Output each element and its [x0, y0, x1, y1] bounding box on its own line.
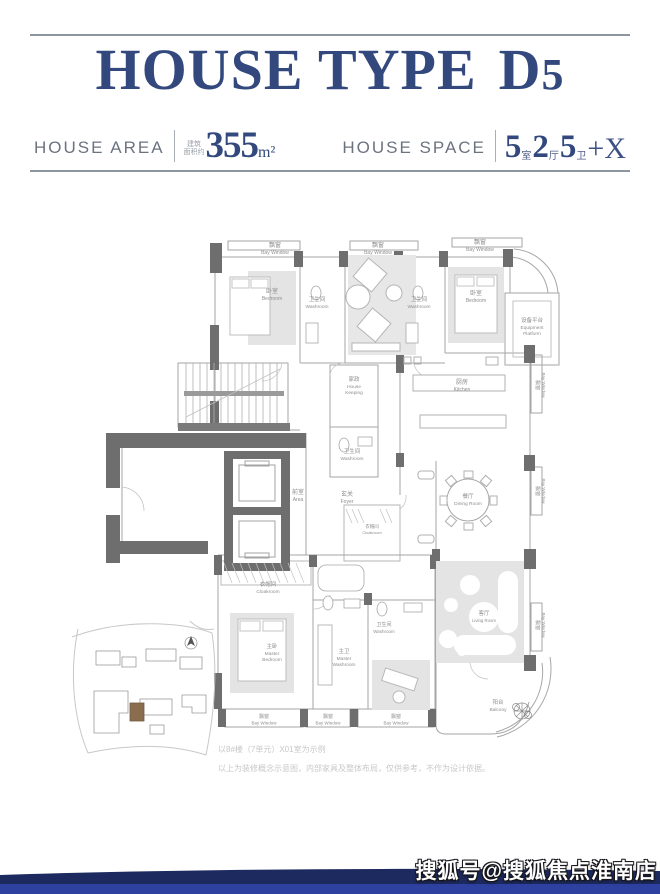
house-space-label: HOUSE SPACE	[342, 138, 486, 164]
label-bedroom-zh: 卧室	[470, 289, 482, 297]
label-foyer-en: Foyer	[341, 499, 354, 505]
label-bay-window-zh: 飘窗	[534, 486, 541, 496]
label-master-bedroom-en2: Bedroom	[262, 657, 281, 663]
label-bay-window-en: Bay Window	[261, 250, 289, 256]
label-cloakroom-en: Cloakroom	[362, 530, 382, 535]
label-bay-window-zh: 飘窗	[391, 713, 401, 720]
label-equipment-en2: Platform	[523, 331, 541, 337]
label-cloakroom-zh: 衣帽间	[365, 523, 379, 530]
label-bedroom-en: Bedroom	[262, 296, 282, 302]
space-baths-num: 5	[560, 131, 577, 164]
label-master-washroom-en2: Washroom	[332, 662, 355, 668]
label-bay-window-zh: 飘窗	[534, 380, 541, 390]
footer-blue-strip	[0, 884, 660, 894]
space-rooms-num: 5	[505, 131, 522, 164]
title-type-letter: D	[499, 37, 542, 102]
tree-icon	[513, 703, 532, 719]
title-main: HOUSE TYPE	[95, 37, 476, 102]
label-master-bedroom-en1: Master	[265, 651, 280, 657]
label-living-zh: 客厅	[478, 609, 490, 617]
label-dining-zh: 餐厅	[462, 492, 474, 500]
label-washroom-en: Washroom	[305, 304, 328, 310]
label-bay-window-en: Bay Window	[364, 250, 392, 256]
label-washroom-en: Washroom	[407, 304, 430, 310]
label-foyer-zh: 玄关	[341, 490, 353, 498]
label-area-zh: 前室	[292, 488, 304, 496]
label-bay-window-en: Bay Window	[251, 721, 277, 726]
label-balcony-zh: 阳台	[492, 698, 504, 706]
label-living-en: Living Room	[472, 618, 496, 623]
label-bay-window-en: Bay Window	[315, 721, 341, 726]
header-subrow: HOUSE AREA 建筑 面积约 355 m² HOUSE SPACE 5 室…	[34, 118, 626, 164]
elevators	[224, 451, 290, 571]
label-washroom-en: Washroom	[373, 629, 395, 634]
label-washroom-zh: 卫生间	[309, 295, 326, 303]
door-arcs	[122, 363, 488, 679]
label-bay-window-en: Bay Window	[541, 372, 546, 398]
label-housekeeping-en2: Keeping	[345, 390, 363, 396]
label-bedroom-en: Bedroom	[466, 298, 486, 304]
label-bay-window-en: Bay Window	[541, 478, 546, 504]
label-bay-window-en: Bay Window	[466, 247, 494, 253]
stairs	[184, 363, 284, 423]
lounge-furniture	[346, 255, 416, 355]
label-kitchen-zh: 厨房	[456, 378, 468, 386]
header-top-rule	[30, 34, 630, 36]
site-map	[72, 621, 215, 755]
watermark-text: 搜狐号@搜狐焦点淮南店	[416, 855, 657, 885]
label-equipment-zh: 设备平台	[521, 316, 544, 324]
label-bay-window-zh: 飘窗	[259, 713, 269, 720]
note-line-1: 以8#楼（7单元）X01室为示例	[218, 746, 490, 755]
label-housekeeping-zh: 家政	[348, 375, 360, 383]
divider	[495, 130, 496, 162]
space-rooms-unit: 室	[521, 147, 532, 164]
area-unit: m²	[258, 144, 275, 164]
highlighted-building	[130, 703, 144, 721]
plan-notes: 以8#楼（7单元）X01室为示例 以上为装修概念示意图，内部家具及整体布局，仅供…	[218, 746, 490, 784]
label-dining-en: Dining Room	[454, 501, 482, 507]
label-bay-window-zh: 飘窗	[323, 713, 333, 720]
label-housekeeping-en1: House	[347, 384, 361, 390]
area-prefix: 建筑 面积约	[184, 141, 205, 164]
label-cloakroom-zh: 衣帽间	[260, 580, 277, 588]
label-area-en: Area	[293, 497, 304, 503]
label-bay-window-zh: 飘窗	[474, 238, 486, 246]
label-bay-window-zh: 飘窗	[534, 620, 541, 630]
label-master-washroom-zh: 主卫	[338, 647, 350, 655]
note-line-2: 以上为装修概念示意图，内部家具及整体布局，仅供参考，不作为设计依据。	[218, 765, 490, 774]
space-halls-num: 2	[532, 131, 549, 164]
floor-plan: 飘窗 Bay Window 飘窗 Bay Window 飘窗 Bay Windo…	[0, 205, 660, 780]
label-bay-window-en: Bay Window	[383, 721, 409, 726]
label-bay-window-zh: 飘窗	[269, 241, 281, 249]
area-value: 355	[206, 127, 259, 164]
divider	[174, 130, 175, 162]
label-washroom-zh: 卫生间	[411, 295, 428, 303]
label-master-bedroom-zh: 主卧	[266, 642, 278, 650]
house-area-label: HOUSE AREA	[34, 138, 165, 164]
house-area-group: HOUSE AREA 建筑 面积约 355 m²	[34, 127, 275, 164]
label-washroom-zh: 卫生间	[344, 447, 361, 455]
label-cloakroom-en: Cloakroom	[256, 589, 279, 595]
label-washroom-en: Washroom	[340, 456, 363, 462]
label-bedroom-zh: 卧室	[266, 287, 278, 295]
label-bay-window-en: Bay Window	[541, 612, 546, 638]
space-suffix: +X	[587, 134, 626, 164]
title-type-number: 5	[542, 50, 565, 99]
label-bay-window-zh: 飘窗	[372, 241, 384, 249]
label-kitchen-en: Kitchen	[454, 387, 471, 393]
header-bottom-rule	[30, 170, 630, 172]
north-arrow-icon	[185, 636, 197, 649]
space-baths-unit: 卫	[576, 147, 587, 164]
floorplan-page: HOUSE TYPED5 HOUSE AREA 建筑 面积约 355 m² HO…	[0, 0, 660, 894]
label-washroom-zh: 卫生间	[376, 621, 391, 628]
dining-table	[418, 471, 497, 543]
house-space-group: HOUSE SPACE 5 室 2 厅 5 卫 +X	[342, 130, 626, 164]
label-master-washroom-en1: Master	[337, 656, 352, 662]
label-equipment-en1: Equipment	[521, 325, 545, 331]
page-title: HOUSE TYPED5	[0, 38, 660, 102]
label-balcony-en: Balcony	[489, 707, 507, 713]
space-halls-unit: 厅	[549, 147, 560, 164]
